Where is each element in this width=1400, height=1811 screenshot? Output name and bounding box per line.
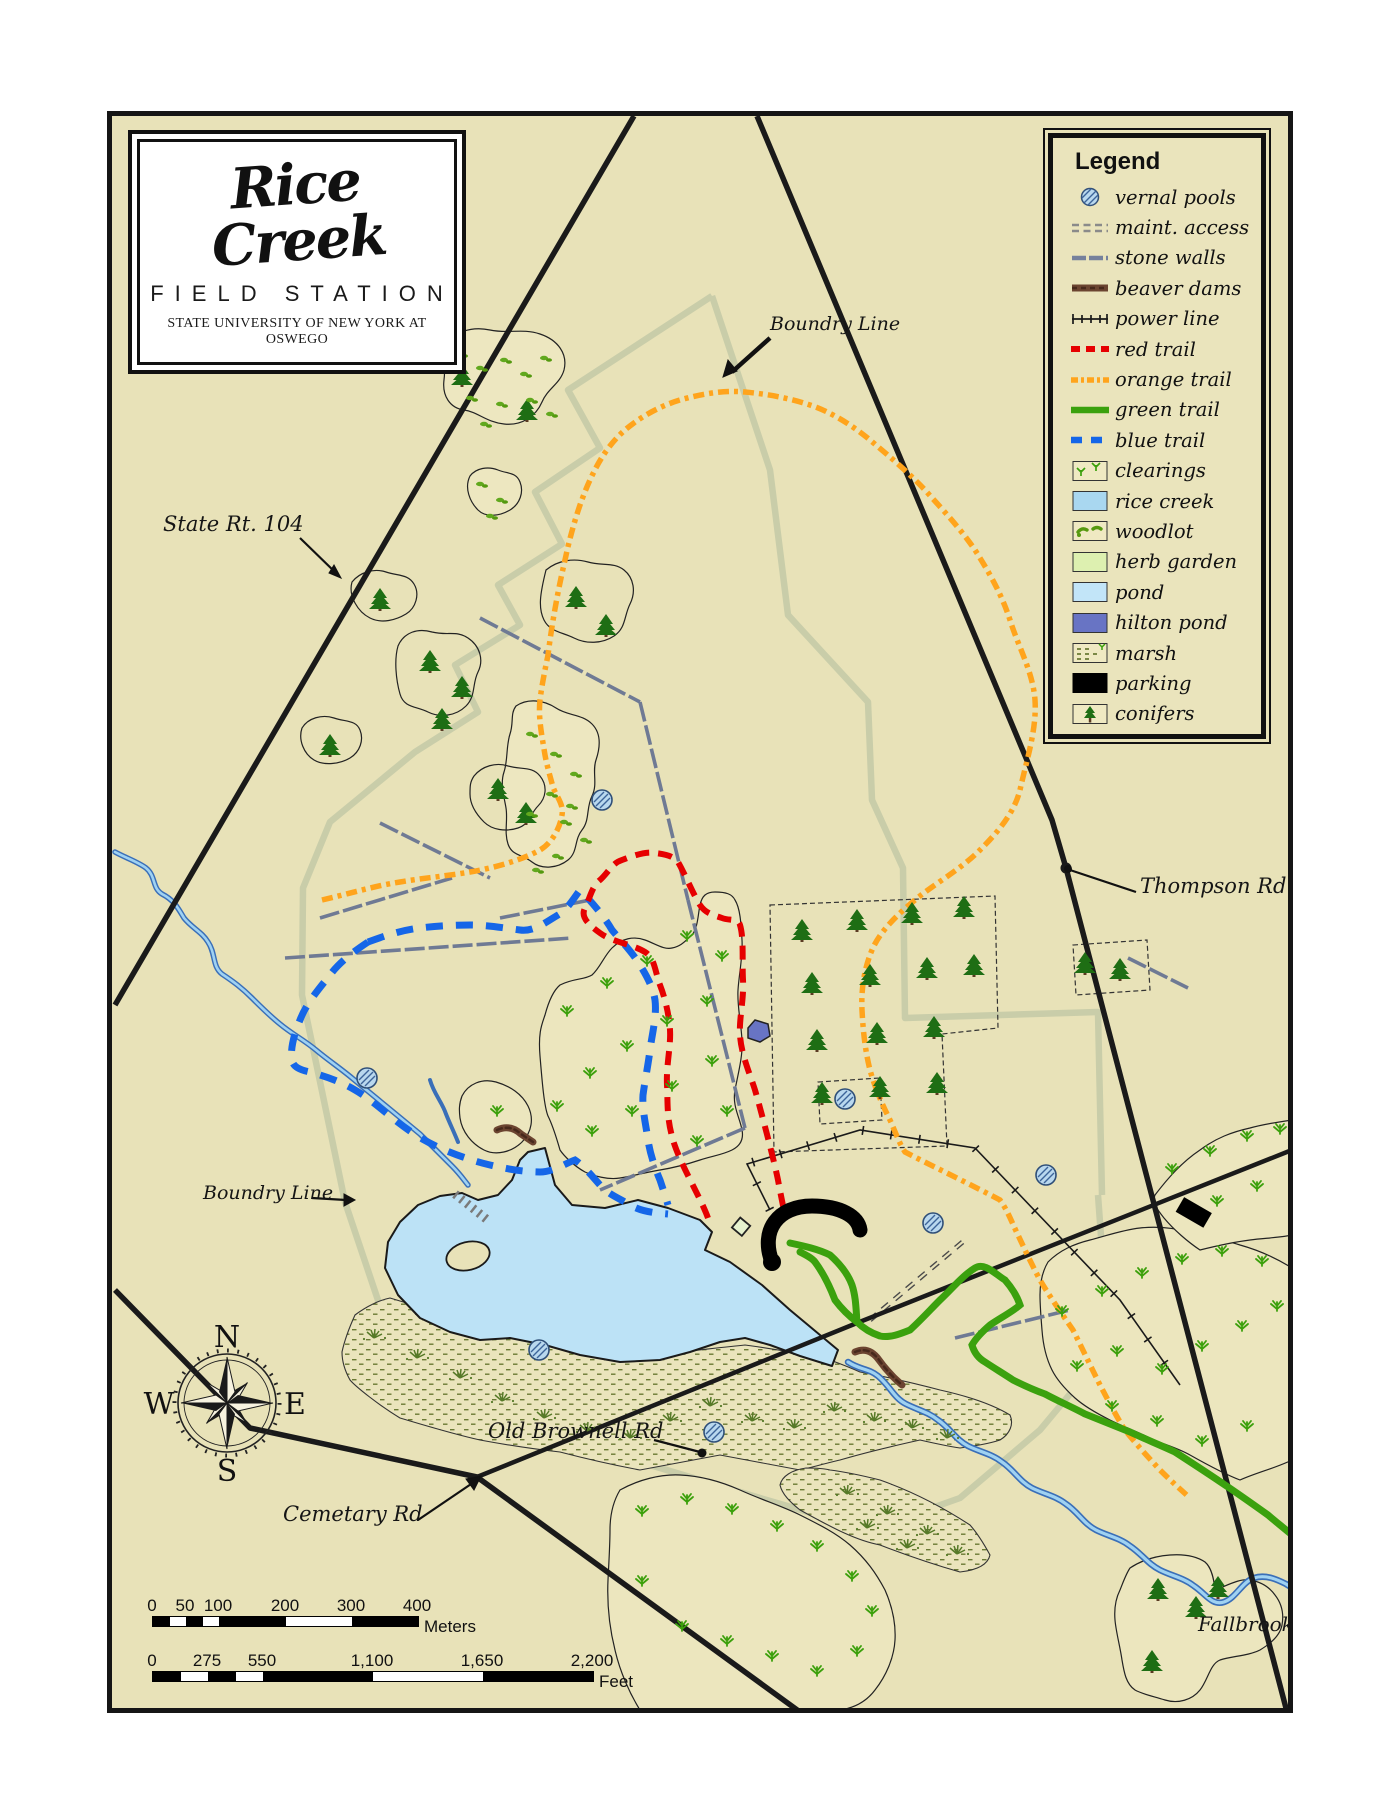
compass-north-label: N: [214, 1320, 240, 1355]
beaver-dams-swatch-icon: [1065, 276, 1115, 300]
pond-swatch-icon: [1065, 580, 1115, 604]
label-old-brownell-rd: Old Brownell Rd: [488, 1419, 663, 1443]
compass-south-label: S: [217, 1454, 238, 1489]
marsh-swatch-icon: [1065, 641, 1115, 665]
legend-item-herb-garden: herb garden: [1065, 547, 1261, 577]
label-boundry-line-west: Boundry Line: [203, 1182, 333, 1204]
logo-institution: STATE UNIVERSITY OF NEW YORK AT OSWEGO: [140, 316, 454, 348]
legend-item-conifers: conifers: [1065, 699, 1261, 729]
label-boundry-line-top: Boundry Line: [770, 313, 900, 335]
clearings-swatch-icon: [1065, 459, 1115, 483]
maintenance-access: [870, 1240, 965, 1320]
label-fallbrook: Fallbrook: [1198, 1612, 1294, 1636]
legend-item-hilton-pond: hilton pond: [1065, 607, 1261, 637]
scale-bar-meters: 0 50 100 200 300 400 Meters: [152, 1596, 492, 1627]
label-thompson-rd: Thompson Rd: [1140, 874, 1286, 898]
scale-bar-feet: 0 275 550 1,100 1,650 2,200 Feet: [152, 1651, 672, 1682]
vernal-pools-swatch-icon: [1065, 185, 1115, 209]
legend-item-parking: parking: [1065, 668, 1261, 698]
maint-access-swatch-icon: [1065, 216, 1115, 240]
station-logo: Rice Creek FIELD STATION STATE UNIVERSIT…: [128, 130, 466, 374]
legend-item-clearings: clearings: [1065, 456, 1261, 486]
legend-item-green-trail: green trail: [1065, 395, 1261, 425]
legend-item-maint-access: maint. access: [1065, 212, 1261, 242]
legend-item-marsh: marsh: [1065, 638, 1261, 668]
rice-creek-west: [115, 852, 468, 1185]
legend-item-orange-trail: orange trail: [1065, 364, 1261, 394]
compass-east-label: E: [284, 1387, 306, 1422]
compass-west-label: W: [144, 1387, 175, 1422]
conifer-blocks-dashed: [770, 896, 1150, 1152]
orange-trail-swatch-icon: [1065, 368, 1115, 392]
legend-item-power-line: power line: [1065, 304, 1261, 334]
feet-bar: [152, 1671, 594, 1682]
legend-item-beaver-dams: beaver dams: [1065, 273, 1261, 303]
power-line-swatch-icon: [1065, 307, 1115, 331]
conifers-swatch-icon: [1065, 702, 1115, 726]
logo-subtitle: FIELD STATION: [150, 281, 454, 307]
legend-title: Legend: [1075, 148, 1261, 176]
red-trail-swatch-icon: [1065, 337, 1115, 361]
logo-title: Rice Creek: [136, 146, 457, 280]
legend-item-pond: pond: [1065, 577, 1261, 607]
legend-item-vernal-pools: vernal pools: [1065, 182, 1261, 212]
meters-bar: [152, 1616, 419, 1627]
legend-item-rice-creek: rice creek: [1065, 486, 1261, 516]
label-state-rt-104: State Rt. 104: [163, 512, 304, 536]
rice-creek-swatch-icon: [1065, 489, 1115, 513]
legend-item-blue-trail: blue trail: [1065, 425, 1261, 455]
herb-garden-marker: [732, 1218, 750, 1236]
page: Rice Creek FIELD STATION STATE UNIVERSIT…: [0, 0, 1400, 1811]
woodlot-swatch-icon: [1065, 519, 1115, 543]
legend-item-stone-walls: stone walls: [1065, 243, 1261, 273]
hilton-pond-swatch-icon: [1065, 611, 1115, 635]
legend-panel: Legend vernal pools maint. access stone …: [1048, 133, 1266, 739]
station-logo-inner: Rice Creek FIELD STATION STATE UNIVERSIT…: [137, 139, 457, 365]
herb-garden-swatch-icon: [1065, 550, 1115, 574]
hilton-pond: [748, 1020, 770, 1042]
parking-swatch-icon: [1065, 671, 1115, 695]
legend-item-woodlot: woodlot: [1065, 516, 1261, 546]
map-frame: Rice Creek FIELD STATION STATE UNIVERSIT…: [107, 111, 1293, 1713]
label-cemetary-rd: Cemetary Rd: [283, 1502, 423, 1526]
legend-item-red-trail: red trail: [1065, 334, 1261, 364]
compass-rose: N E S W: [138, 1314, 316, 1492]
green-trail-swatch-icon: [1065, 398, 1115, 422]
blue-trail-swatch-icon: [1065, 428, 1115, 452]
stone-walls-swatch-icon: [1065, 246, 1115, 270]
